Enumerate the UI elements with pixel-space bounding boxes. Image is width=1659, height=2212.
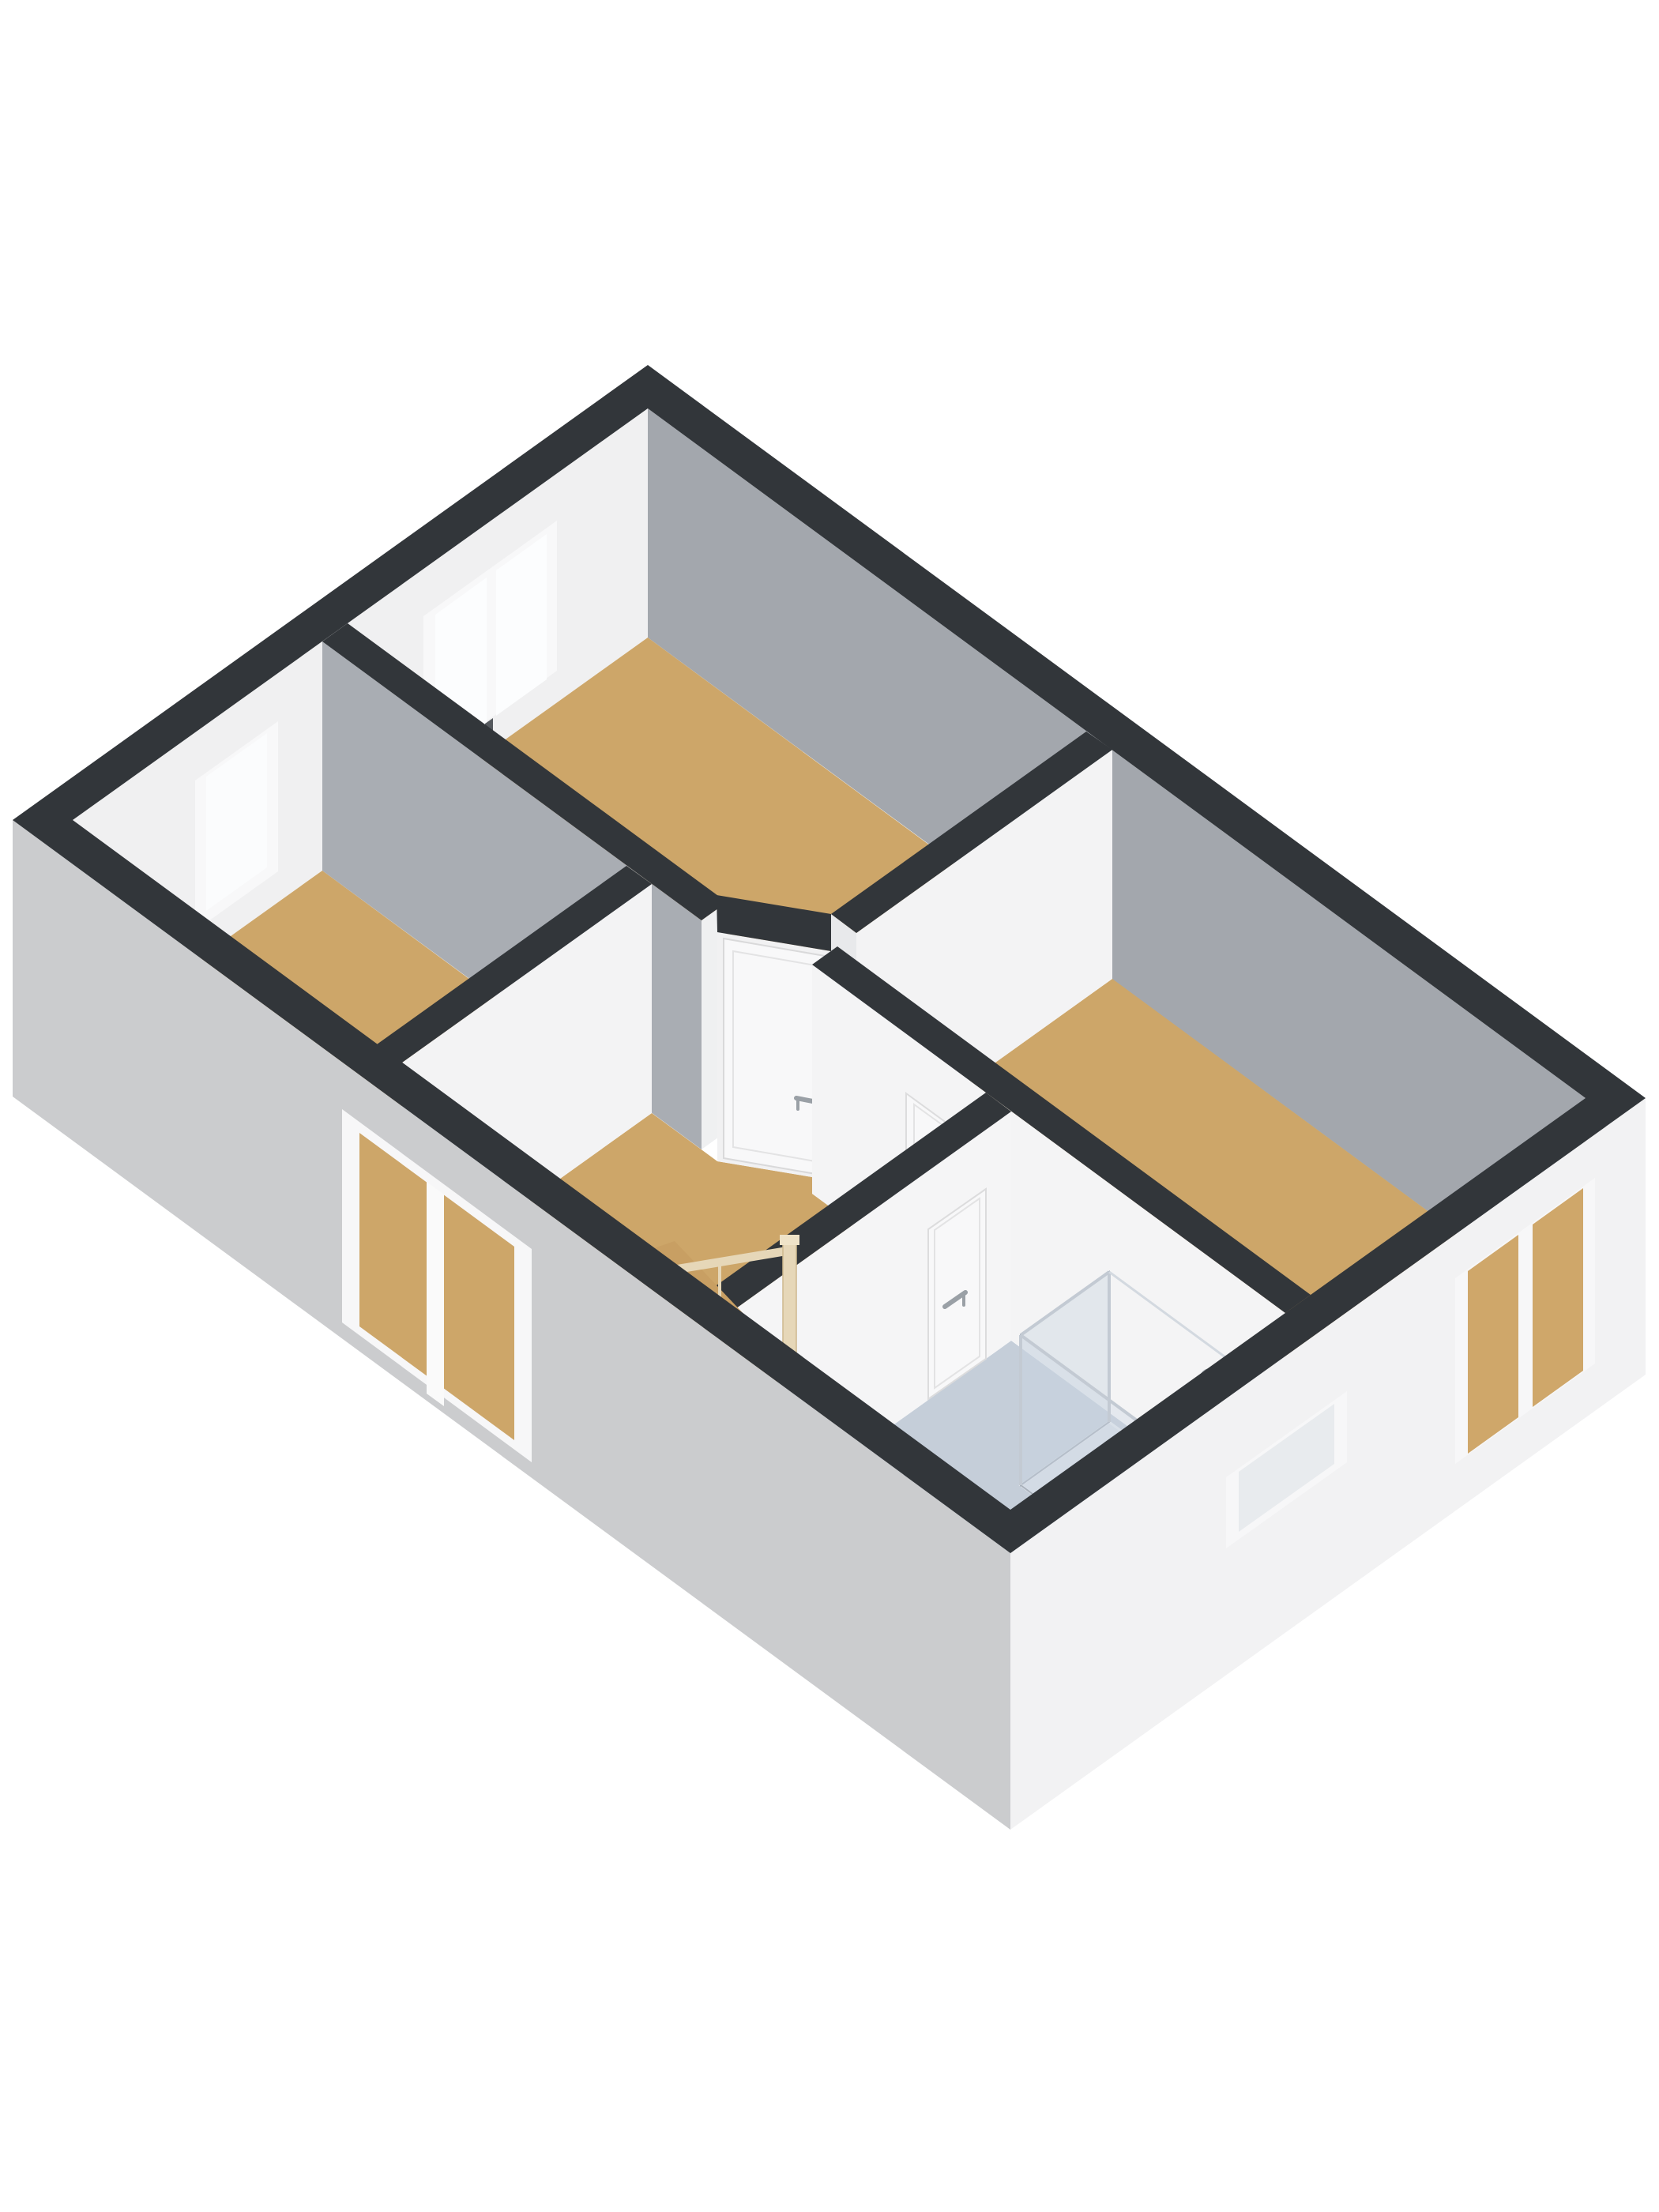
right-room-window-pane-right (1468, 1235, 1518, 1454)
stairwell-window-mullion (427, 1182, 444, 1406)
right-room-window-pane-left (1533, 1188, 1583, 1407)
floorplan-canvas (0, 0, 1659, 2212)
floorplan-svg (0, 0, 1659, 2212)
stair-newel-cap (780, 1235, 799, 1245)
door-top-room (724, 939, 825, 1176)
